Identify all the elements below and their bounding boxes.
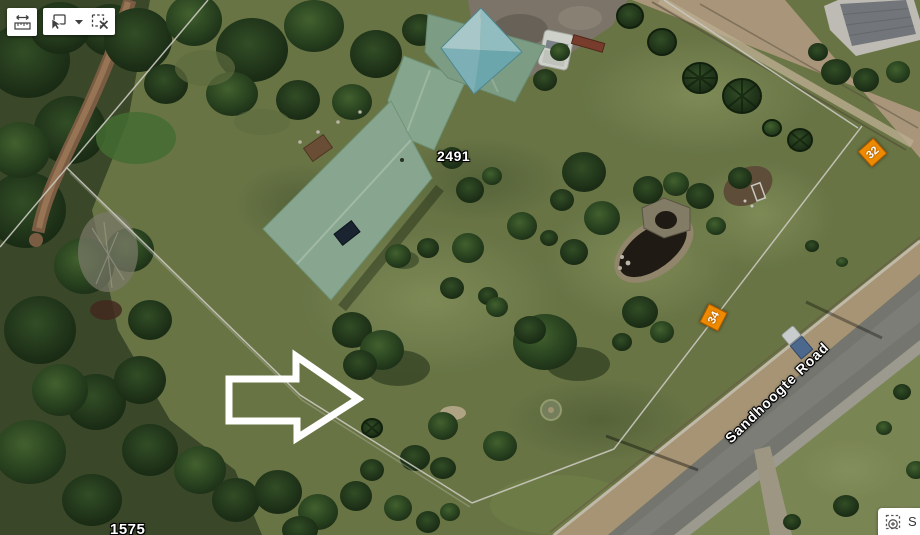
imagery-grain (0, 0, 920, 535)
select-rectangle-button[interactable] (46, 8, 70, 35)
chevron-down-icon (74, 19, 84, 25)
clear-selection-button[interactable] (88, 8, 112, 35)
measure-button[interactable] (7, 8, 37, 36)
aerial-imagery[interactable] (0, 0, 920, 535)
select-options-button[interactable] (72, 8, 86, 35)
clear-selection-icon (90, 12, 110, 32)
measure-ruler-icon (11, 8, 34, 36)
parcel-label-1575: 1575 (110, 521, 145, 535)
select-toolbar-group (43, 8, 115, 35)
zoom-to-selection-button[interactable]: S (878, 508, 920, 535)
parcel-label-2491: 2491 (437, 148, 470, 164)
zoom-to-selection-icon (885, 514, 903, 535)
map-viewport[interactable]: 2491 1575 Sandhoogte Road 32 34 (0, 0, 920, 535)
panel-partial-text: S (908, 514, 917, 529)
select-rectangle-cursor-icon (48, 12, 68, 32)
